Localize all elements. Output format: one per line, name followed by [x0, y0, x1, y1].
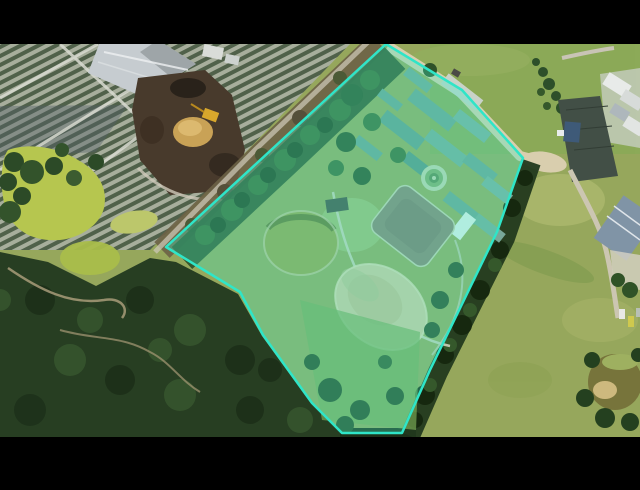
- blue-shed: [563, 121, 581, 142]
- vehicle: [619, 309, 625, 319]
- vehicle: [628, 316, 634, 327]
- letterbox-top: [0, 0, 640, 44]
- letterbox-bottom: [0, 437, 640, 490]
- aerial-photo: [0, 40, 640, 437]
- aerial-map-canvas: [0, 0, 640, 490]
- screenshot-stage: [0, 0, 640, 490]
